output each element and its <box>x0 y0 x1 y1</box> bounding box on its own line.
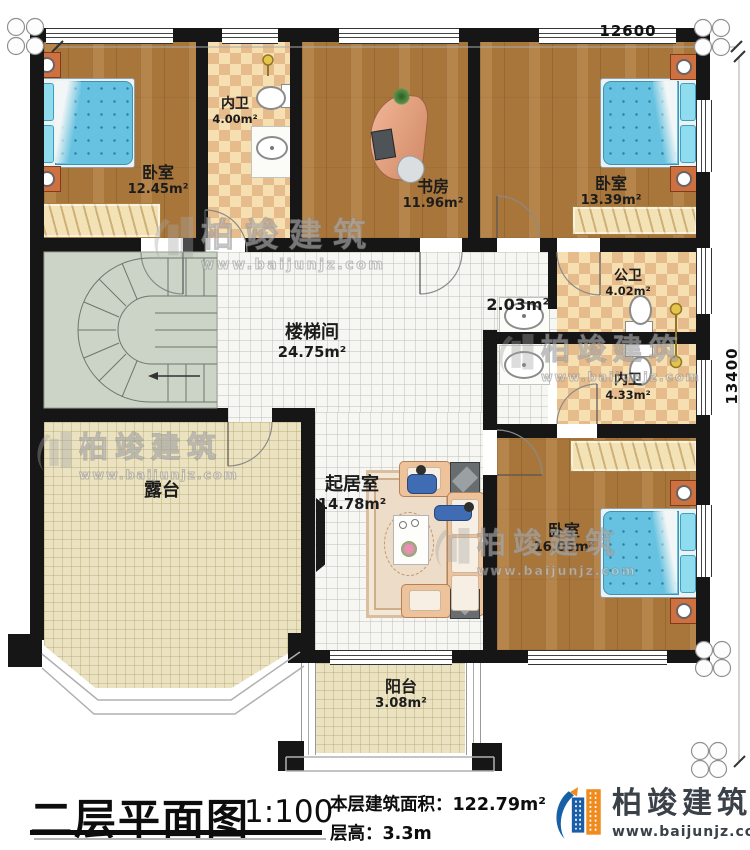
pillow <box>680 125 696 163</box>
label-living-room: 起居室 14.78m² <box>318 474 387 513</box>
floor-area-text: 本层建筑面积：122.79m² <box>330 791 546 816</box>
wardrobe <box>33 203 161 238</box>
sink-basin <box>256 136 288 160</box>
floor-height-text: 层高：3.3m <box>330 820 432 845</box>
cup <box>399 521 407 529</box>
room-area: 4.33m² <box>605 389 650 403</box>
wall-terrace <box>272 408 315 422</box>
cushion <box>451 537 479 573</box>
room-name: 阳台 <box>385 677 417 696</box>
wall-bottom <box>452 650 528 663</box>
bed-top-left <box>33 78 135 168</box>
label-terrace: 露台 <box>144 480 180 502</box>
label-bath-top: 内卫 4.00m² <box>212 96 257 127</box>
person-sitting <box>407 474 437 494</box>
blanket-fold <box>653 81 677 163</box>
room-area: 16.05m² <box>534 540 595 556</box>
room-name: 露台 <box>144 480 180 501</box>
wall-interior <box>30 238 141 252</box>
window <box>696 360 712 415</box>
dimension-top: 12600 <box>596 22 660 40</box>
person-head <box>464 502 474 512</box>
window <box>339 28 459 44</box>
room-area: 13.39m² <box>581 193 642 209</box>
nightstand <box>670 598 698 624</box>
wall-interior <box>497 424 557 438</box>
label-hallway-area: 2.03m² <box>486 295 549 314</box>
nightstand <box>670 166 698 192</box>
cushion <box>409 590 441 611</box>
company-logo: 柏竣建筑 www.baijunjz.com <box>549 783 750 845</box>
label-bedroom-top-left: 卧室 12.45m² <box>128 163 189 198</box>
balcony-side-rail-right <box>466 663 481 755</box>
room-area: 24.75m² <box>278 344 347 362</box>
wall-bottom <box>667 650 710 663</box>
wall-interior <box>483 330 497 430</box>
label-bath-inner: 内卫 4.33m² <box>605 372 650 403</box>
room-name: 书房 <box>417 177 449 196</box>
toilet-bowl <box>629 295 652 325</box>
label-stairwell: 楼梯间 24.75m² <box>278 322 347 361</box>
room-area: 2.03m² <box>486 295 549 314</box>
floor-height-value: 3.3m <box>383 824 432 844</box>
plan-scale: 1:100 <box>244 794 333 830</box>
label-balcony: 阳台 3.08m² <box>375 677 427 712</box>
room-name: 楼梯间 <box>285 322 339 343</box>
blanket-fold <box>55 81 81 163</box>
computer-monitor <box>371 129 396 161</box>
room-name: 起居室 <box>325 474 379 495</box>
cup <box>411 519 419 527</box>
title-underline <box>30 830 322 835</box>
wall-interior <box>462 238 497 252</box>
wall-interior <box>301 412 315 650</box>
label-bedroom-top-right: 卧室 13.39m² <box>581 174 642 209</box>
floor-plan-page: 卧室 12.45m² 内卫 4.00m² 书房 11.96m² 卧室 13.39… <box>0 0 750 850</box>
pillar <box>472 743 502 771</box>
window <box>46 28 173 44</box>
window <box>528 650 667 665</box>
room-name: 内卫 <box>221 96 249 112</box>
floor-stair-hall <box>217 252 483 422</box>
title-underline-2 <box>34 838 326 840</box>
pillar <box>278 741 304 771</box>
room-name: 卧室 <box>595 174 627 193</box>
window <box>696 505 712 577</box>
pillar <box>8 634 42 667</box>
pillar <box>288 633 301 653</box>
floor-terrace <box>44 422 301 688</box>
wall-interior <box>183 238 205 252</box>
floor-height-label: 层高： <box>330 824 383 844</box>
nightstand <box>670 480 698 506</box>
wall-interior <box>597 424 696 438</box>
bed-top-right <box>600 78 698 168</box>
pillow <box>680 83 696 121</box>
dimension-right: 13400 <box>723 345 741 407</box>
blanket-fold <box>653 511 677 593</box>
room-area: 4.00m² <box>212 113 257 127</box>
pillow <box>680 513 696 551</box>
bed-bottom-right <box>600 508 698 598</box>
floor-stairs <box>44 252 217 408</box>
room-area: 12.45m² <box>128 182 189 198</box>
wall-interior <box>245 238 420 252</box>
wall-interior <box>468 42 480 238</box>
balcony-railing <box>286 757 494 771</box>
wall-interior <box>600 238 696 252</box>
room-name: 内卫 <box>614 372 642 388</box>
plant-icon <box>393 88 410 105</box>
room-area: 4.02m² <box>605 285 650 299</box>
wall-terrace <box>30 408 228 422</box>
floor-area-label: 本层建筑面积： <box>330 795 453 815</box>
person-head <box>416 465 426 475</box>
room-name: 卧室 <box>548 521 580 540</box>
window <box>696 248 712 314</box>
window <box>696 100 712 172</box>
label-study: 书房 11.96m² <box>403 177 464 212</box>
wall-interior <box>497 332 696 344</box>
room-name: 公卫 <box>614 268 642 284</box>
company-name: 柏竣建筑 <box>612 788 750 820</box>
company-url: www.baijunjz.com <box>612 824 750 840</box>
room-name: 卧室 <box>142 163 174 182</box>
label-bedroom-bottom-right: 卧室 16.05m² <box>534 521 595 556</box>
pillow <box>680 555 696 593</box>
label-bath-public: 公卫 4.02m² <box>605 268 650 299</box>
sliding-door <box>330 650 452 665</box>
wall-interior <box>290 42 302 238</box>
cushion <box>451 575 479 611</box>
wardrobe <box>570 440 698 472</box>
wall-interior <box>540 238 557 252</box>
wardrobe <box>572 206 698 235</box>
room-area: 11.96m² <box>403 196 464 212</box>
nightstand <box>670 54 698 80</box>
wall-interior <box>196 42 208 238</box>
company-logo-icon <box>549 783 605 845</box>
room-area: 3.08m² <box>375 696 427 712</box>
flower-bowl <box>401 541 417 557</box>
window <box>222 28 278 44</box>
wall-left <box>30 28 44 640</box>
room-area: 14.78m² <box>318 496 387 514</box>
toilet-bowl <box>256 86 286 110</box>
floor-area-value: 122.79m² <box>453 795 546 815</box>
sink-basin <box>504 351 544 379</box>
wall-interior <box>483 475 497 663</box>
